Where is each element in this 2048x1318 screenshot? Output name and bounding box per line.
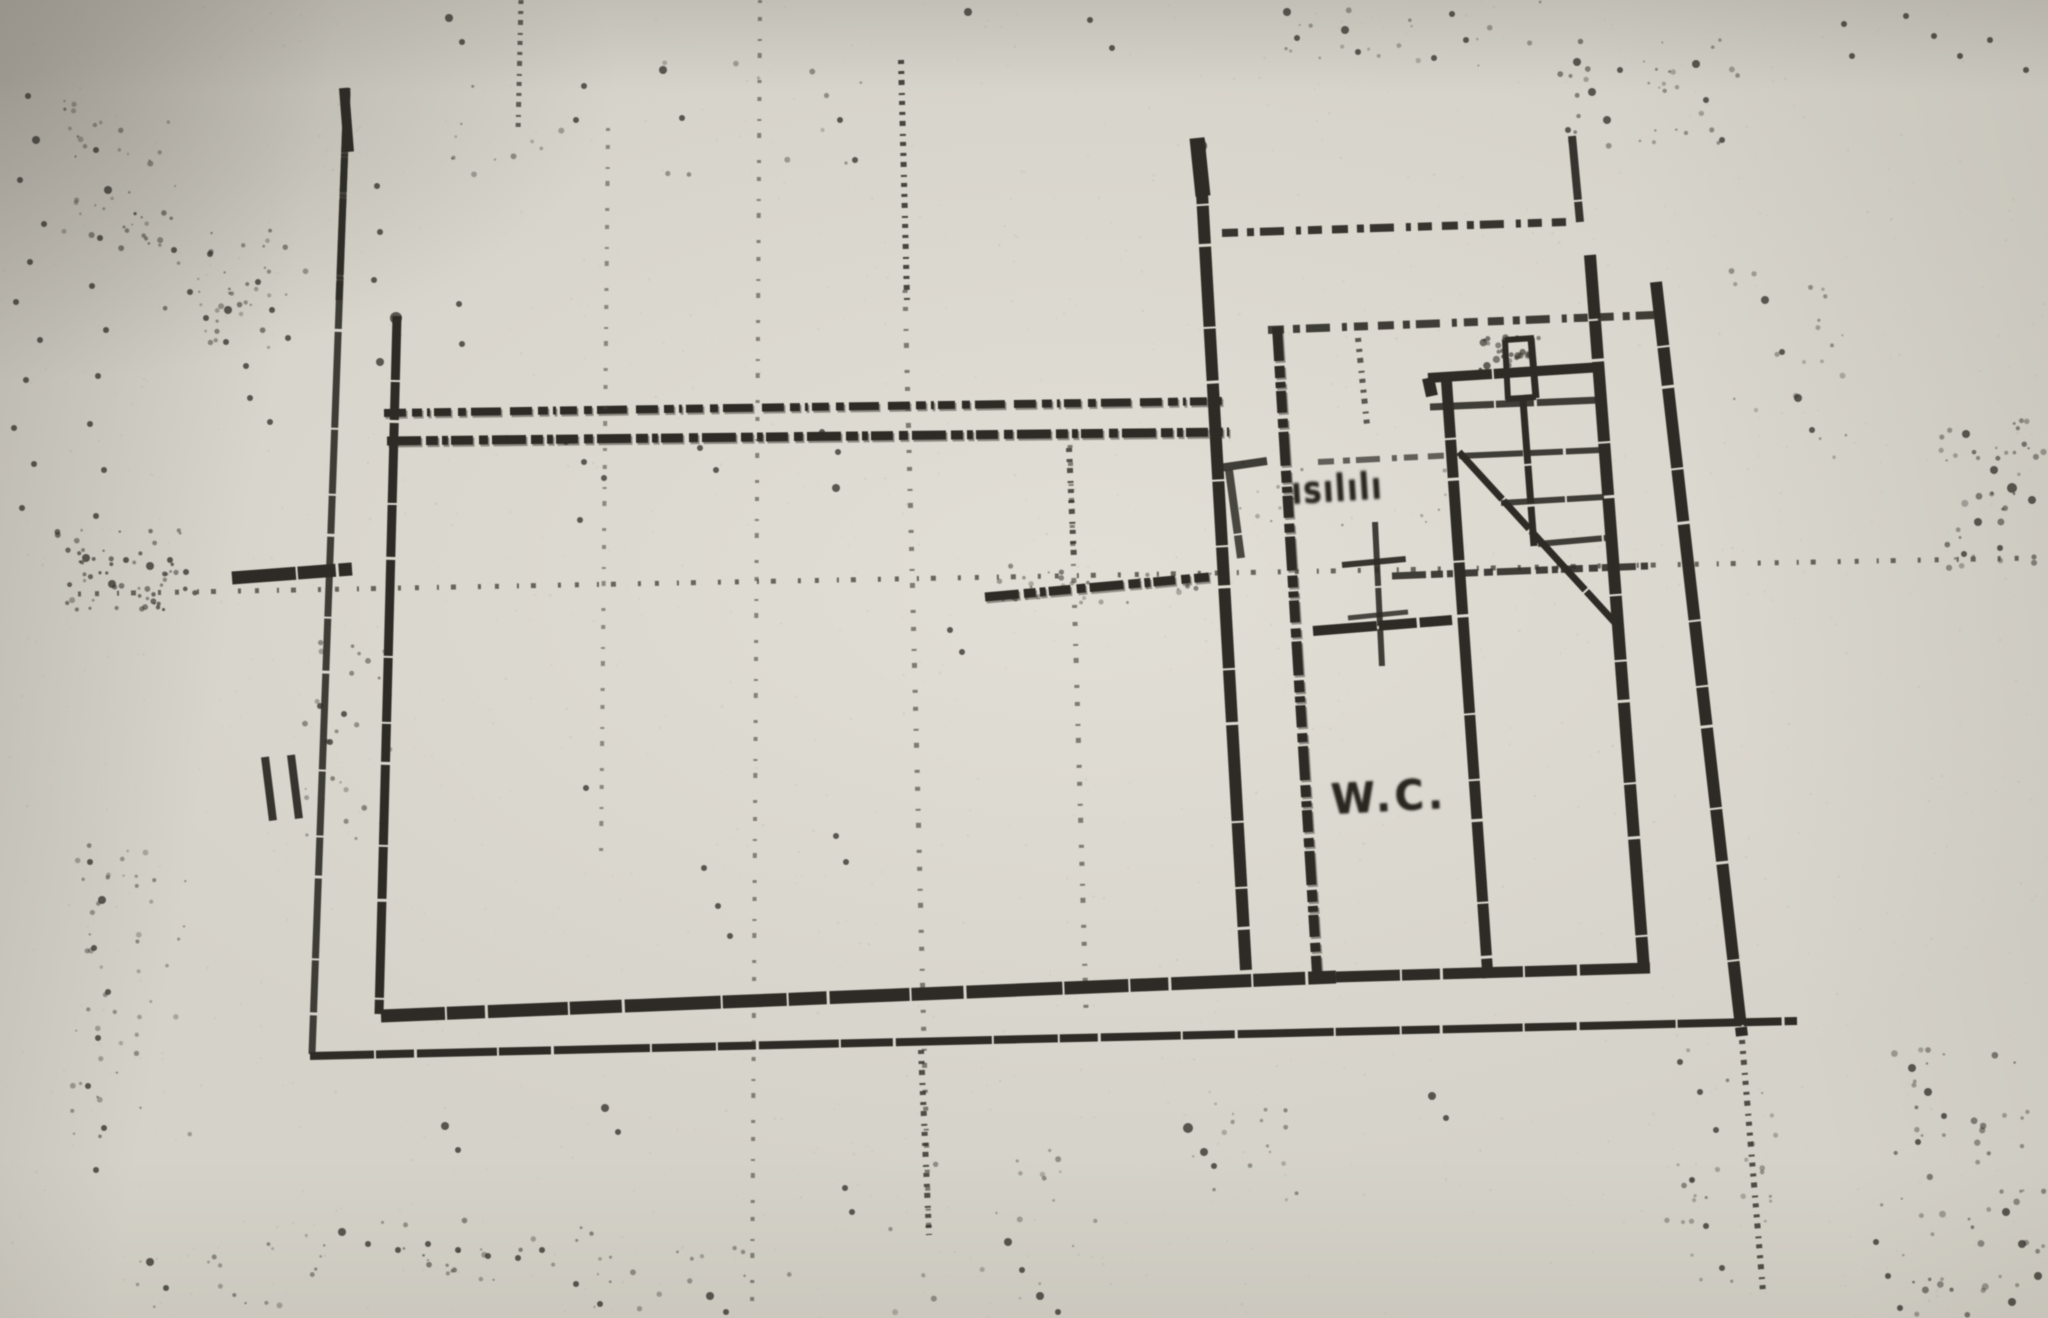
speckle-layer	[11, 8, 2042, 1315]
floor-plan-drawing	[0, 0, 2048, 1318]
dotted-wall-layer	[78, 0, 2035, 1318]
scanned-floor-plan-page: ısılılı W.C.	[0, 0, 2048, 1318]
illegible-annotation: ısılılı	[1290, 464, 1384, 513]
wc-room-label: W.C.	[1330, 769, 1448, 824]
speckle-cluster-layer	[55, 1, 2047, 1318]
scan-grain-layer	[0, 1, 2048, 1318]
